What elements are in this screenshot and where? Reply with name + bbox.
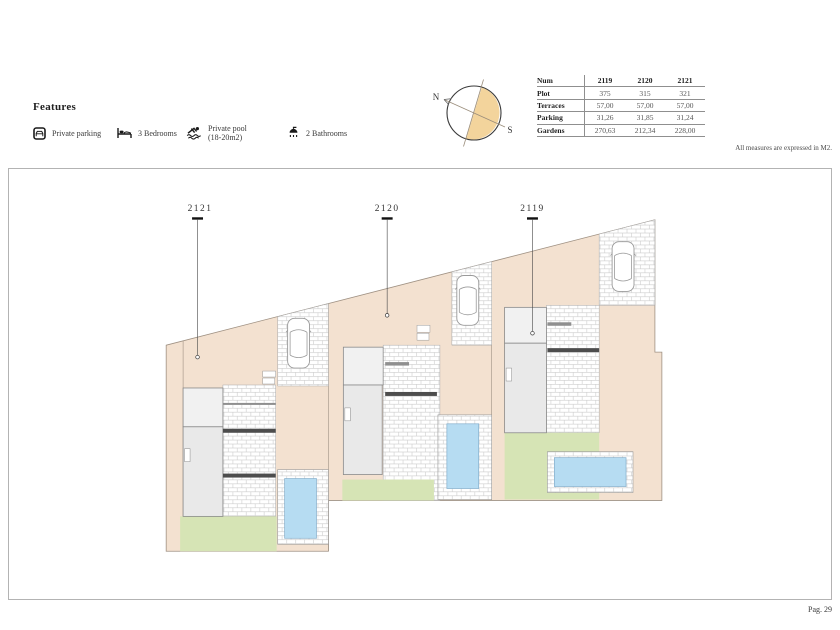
plot-2120-door	[345, 408, 350, 421]
leader-dot-2119	[531, 331, 535, 335]
feature-label: 3 Bedrooms	[138, 129, 177, 138]
plot-2121-steps	[263, 378, 275, 384]
cell-value: 270,63	[585, 126, 625, 135]
cell-value: 57,00	[625, 101, 665, 110]
feature-item-parking: Private parking	[33, 122, 101, 144]
cell-value: 57,00	[585, 101, 625, 110]
table-column-2121: 2121	[665, 76, 705, 85]
compass-rose: N S	[425, 72, 525, 152]
plot-2121-band	[223, 403, 276, 405]
cell-value: 228,00	[665, 126, 705, 135]
features-title: Features	[33, 101, 76, 113]
plot-2119-building-upper	[505, 307, 547, 343]
table-header-label: Num	[537, 75, 585, 86]
pool-icon	[186, 126, 202, 140]
table-row-terraces: Terraces 57,00 57,00 57,00	[537, 100, 705, 112]
plot-2121-band	[223, 429, 276, 433]
measures-table: Num 2119 2120 2121 Plot 375 315 321 Terr…	[537, 75, 705, 137]
plot-2121-garden	[180, 516, 277, 551]
plot-2120-steps	[417, 333, 429, 340]
feature-label: Private parking	[52, 129, 101, 138]
cell-value: 31,26	[585, 113, 625, 122]
leader-dot-2120	[385, 314, 389, 318]
compass-north-label: N	[433, 92, 440, 102]
cell-value: 315	[625, 89, 665, 98]
plot-2120-pool	[447, 424, 479, 489]
row-label: Plot	[537, 87, 585, 98]
plot-label-2120: 2120	[375, 204, 400, 214]
cell-value: 57,00	[665, 101, 705, 110]
feature-label-line1: Private pool	[208, 124, 247, 133]
parking-icon	[33, 127, 46, 140]
feature-item-pool: Private pool(18-20m2)	[186, 122, 247, 144]
feature-label: 2 Bathrooms	[306, 129, 347, 138]
table-row-gardens: Gardens 270,63 212,34 228,00	[537, 125, 705, 137]
feature-item-bathrooms: 2 Bathrooms	[287, 122, 347, 144]
cell-value: 31,85	[625, 113, 665, 122]
plot-2119-band	[547, 348, 599, 352]
plot-2121-building-lower	[183, 427, 223, 517]
site-plan-frame: 2121 2120 2119	[8, 168, 832, 600]
plot-2120-band	[385, 362, 409, 365]
table-row-plot: Plot 375 315 321	[537, 87, 705, 99]
feature-label-line2: (18-20m2)	[208, 133, 242, 142]
plot-2121-building-upper	[183, 388, 223, 427]
plot-2119-building-lower	[505, 343, 547, 433]
plot-2119-car	[611, 242, 636, 292]
cell-value: 31,24	[665, 113, 705, 122]
shower-icon	[287, 126, 300, 140]
site-plan: 2121 2120 2119	[9, 169, 831, 599]
plot-2121-car	[286, 318, 311, 368]
measures-note: All measures are expressed in M2.	[735, 144, 832, 152]
plot-2119-door	[506, 368, 511, 381]
plot-2119-pool	[554, 458, 626, 487]
leader-dot-2121	[196, 355, 200, 359]
table-row-parking: Parking 31,26 31,85 31,24	[537, 112, 705, 124]
bed-icon	[117, 127, 132, 139]
plot-2120-building-lower	[343, 385, 382, 475]
plot-label-2121: 2121	[188, 204, 213, 214]
feature-item-bedrooms: 3 Bedrooms	[117, 122, 177, 144]
page-number: Pag. 29	[808, 605, 832, 614]
plot-2120-car	[455, 276, 480, 326]
plot-2120-building-upper	[343, 347, 383, 385]
cell-value: 375	[585, 89, 625, 98]
compass-south-label: S	[507, 125, 512, 135]
plot-2121-steps	[263, 371, 276, 377]
plot-2121-pool	[285, 479, 317, 539]
row-label: Terraces	[537, 100, 585, 111]
row-label: Gardens	[537, 125, 585, 136]
feature-label: Private pool(18-20m2)	[208, 124, 247, 142]
table-header-row: Num 2119 2120 2121	[537, 75, 705, 87]
table-column-2120: 2120	[625, 76, 665, 85]
plot-2120-band	[385, 392, 437, 396]
plot-2121-door	[185, 449, 190, 462]
cell-value: 321	[665, 89, 705, 98]
plot-2120-terrace	[383, 345, 440, 500]
plot-2121-band	[223, 474, 276, 478]
leader-tick	[527, 217, 538, 219]
plot-2120-garden	[342, 480, 434, 501]
plot-2119-band	[547, 322, 571, 325]
leader-tick	[192, 217, 203, 219]
plot-2120-steps	[417, 325, 430, 332]
plot-label-2119: 2119	[520, 204, 545, 214]
table-column-2119: 2119	[585, 76, 625, 85]
leader-tick	[382, 217, 393, 219]
cell-value: 212,34	[625, 126, 665, 135]
row-label: Parking	[537, 112, 585, 123]
